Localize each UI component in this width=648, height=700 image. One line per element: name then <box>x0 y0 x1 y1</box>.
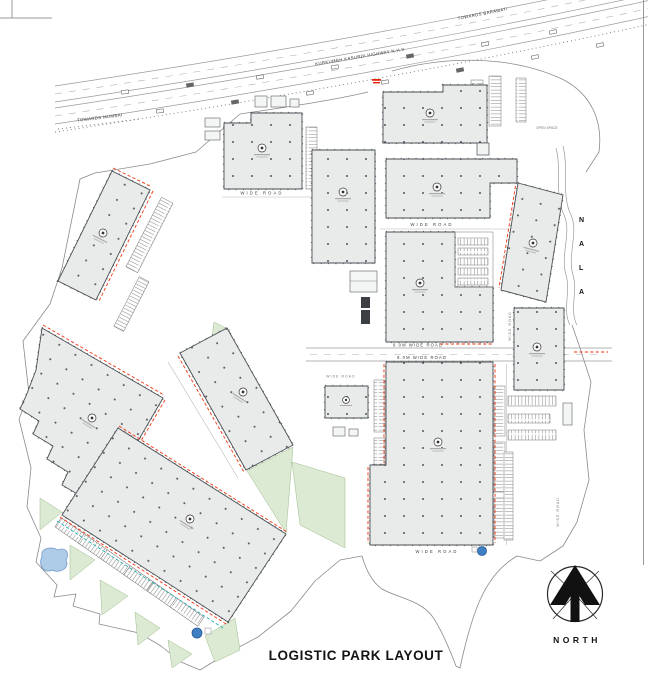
road-label: WIDE ROAD <box>556 497 560 527</box>
green-patch <box>292 462 345 548</box>
vehicle-icon <box>456 68 464 73</box>
vehicle-icon <box>186 83 193 87</box>
water-tank-icon <box>192 628 202 638</box>
nala: N A L A <box>556 146 584 325</box>
road-label: WIDE ROAD <box>415 549 458 554</box>
dock-row <box>374 380 385 432</box>
dock-row <box>494 498 505 538</box>
parking-row <box>114 277 149 332</box>
small-structure <box>205 131 220 140</box>
parking-row <box>508 414 550 423</box>
warehouse-4 <box>386 159 517 218</box>
north-symbol: NORTH <box>548 565 603 645</box>
green-patch <box>100 580 128 615</box>
parking-row <box>458 278 488 285</box>
vehicle-icon <box>306 91 313 96</box>
parking-row <box>516 78 526 122</box>
small-structure <box>563 403 572 425</box>
green-patch <box>135 612 160 645</box>
vehicle-icon <box>331 65 338 70</box>
page-title: LOGISTIC PARK LAYOUT <box>269 648 444 663</box>
small-structure <box>205 118 220 127</box>
vehicle-icon <box>481 42 489 47</box>
towards-east-label: TOWARDS BARAMATI <box>457 6 508 21</box>
small-structure <box>333 427 345 436</box>
small-structure <box>349 429 358 436</box>
road-label: WIDE ROAD <box>240 191 283 196</box>
warehouse-3 <box>312 150 375 263</box>
towards-west-label: TOWARDS MUMBAI <box>77 112 123 123</box>
parking-row <box>458 238 488 245</box>
vehicle-icon <box>156 109 163 113</box>
dock-row <box>494 442 505 492</box>
green-patch <box>205 618 240 662</box>
logistic-park-plan: KURKUMBH KASURDI HIGHWAY N.H.9 TOWARDS M… <box>0 0 648 700</box>
nala-letter: L <box>579 265 584 272</box>
vehicle-icon <box>121 90 128 94</box>
road-label: WIDE ROAD <box>326 375 356 379</box>
water-tank-icon <box>478 547 487 556</box>
warehouse-big-south <box>368 362 495 545</box>
nala-letter: N <box>579 217 584 224</box>
road-label: WIDE ROAD <box>508 311 512 341</box>
highway: KURKUMBH KASURDI HIGHWAY N.H.9 TOWARDS M… <box>55 0 648 132</box>
small-structure <box>290 99 299 107</box>
small-structure <box>255 96 267 107</box>
vehicle-icon <box>596 43 604 48</box>
parking-row <box>458 258 488 265</box>
parking-row <box>489 76 501 126</box>
small-structure <box>271 96 286 107</box>
vehicle-icon <box>406 54 414 59</box>
plan-svg: KURKUMBH KASURDI HIGHWAY N.H.9 TOWARDS M… <box>0 0 648 700</box>
dock-row <box>494 386 505 436</box>
vehicle-icon <box>381 80 388 85</box>
road-label: WIDE ROAD <box>410 222 453 227</box>
gate-marker <box>372 79 381 83</box>
vehicle-icons <box>121 30 603 114</box>
vehicle-icon <box>256 75 263 79</box>
parking-row <box>508 396 556 406</box>
utility-building <box>350 271 377 292</box>
road-label: 9.0M WIDE ROAD <box>393 343 443 348</box>
pond <box>41 548 68 571</box>
vehicle-icon <box>231 100 238 104</box>
nala-letter: A <box>579 289 584 296</box>
warehouse-mid-tilted <box>178 328 293 472</box>
open-space-label: OPEN SPACE <box>536 126 559 130</box>
parking-row <box>504 452 513 540</box>
nala-letter: A <box>579 241 584 248</box>
truck-icon <box>361 297 370 324</box>
vehicle-icon <box>549 30 557 35</box>
highway-name-label: KURKUMBH KASURDI HIGHWAY N.H.9 <box>315 47 405 67</box>
parking-row <box>508 430 556 440</box>
vehicle-icon <box>531 55 539 60</box>
green-patch <box>168 640 192 668</box>
parking-row <box>458 248 488 255</box>
north-label: NORTH <box>553 635 601 645</box>
road-label: 9.0M WIDE ROAD <box>397 355 447 360</box>
parking-row <box>458 268 488 275</box>
